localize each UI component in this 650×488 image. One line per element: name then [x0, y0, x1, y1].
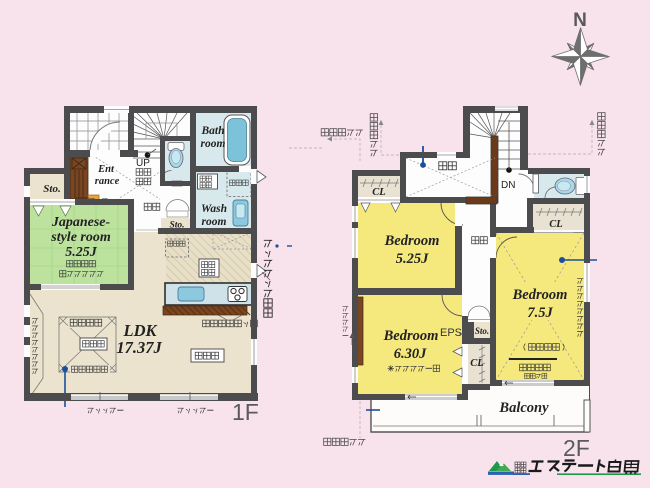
svg-text:Bedroom: Bedroom [512, 287, 568, 303]
svg-text:DN: DN [501, 180, 515, 191]
svg-text:rance: rance [95, 176, 120, 187]
svg-text:EPS: EPS [440, 327, 462, 339]
svg-text:CL: CL [470, 358, 483, 369]
svg-text:UP: UP [136, 158, 150, 169]
svg-text:room: room [201, 138, 226, 150]
svg-text:room: room [202, 216, 227, 228]
svg-text:6.30J: 6.30J [394, 346, 427, 362]
svg-text:Wash: Wash [201, 203, 227, 215]
svg-text:Bedroom: Bedroom [383, 328, 439, 344]
svg-text:Ent: Ent [97, 164, 115, 175]
svg-text:Sto.: Sto. [43, 183, 60, 195]
svg-text:CL: CL [549, 219, 562, 230]
svg-text:Japanese-: Japanese- [51, 215, 111, 230]
svg-text:CL: CL [372, 187, 385, 198]
svg-text:Bedroom: Bedroom [384, 233, 440, 249]
svg-text:7.5J: 7.5J [527, 305, 553, 321]
svg-text:1F: 1F [232, 399, 259, 425]
svg-text:5.25J: 5.25J [396, 251, 429, 267]
svg-text:5.25J: 5.25J [65, 245, 98, 260]
svg-text:N: N [573, 10, 587, 31]
svg-text:Bath: Bath [200, 125, 224, 137]
svg-text:17.37J: 17.37J [116, 338, 162, 357]
svg-text:Sto.: Sto. [475, 326, 489, 336]
svg-text:style room: style room [50, 230, 111, 245]
svg-text:Balcony: Balcony [498, 400, 549, 416]
svg-text:2F: 2F [563, 435, 590, 461]
